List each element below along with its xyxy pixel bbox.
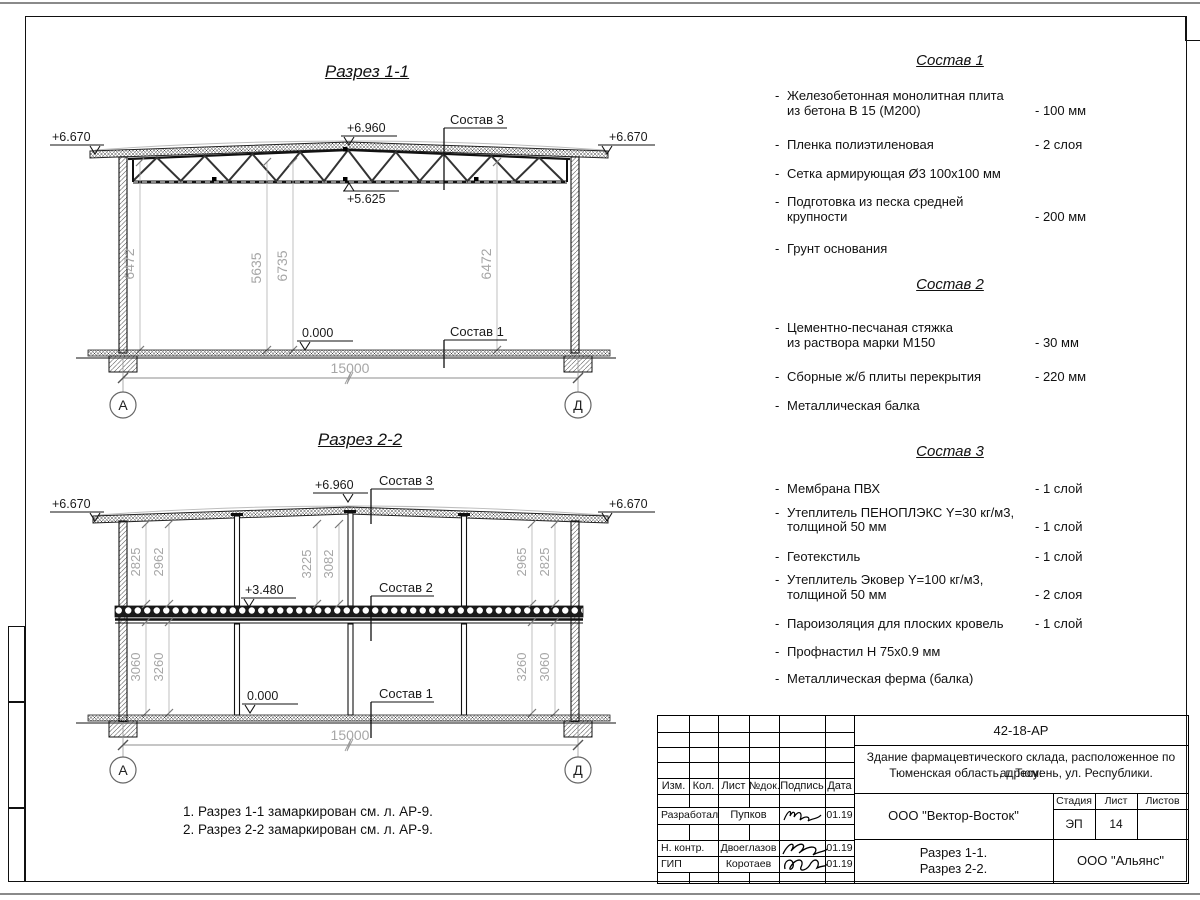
row-developer-role: Разработал [658,807,721,824]
row-ncontr-role: Н. контр. [658,840,721,856]
leader-roof-label: Состав 3 [450,112,504,127]
sheet-number: 14 [1095,809,1137,839]
company-name: ООО "Вектор-Восток" [854,793,1053,839]
list-item: -Подготовка из песка средней крупности -… [775,195,1125,224]
row-gip-role: ГИП [658,856,721,872]
note-line-2: 2. Разрез 2-2 замаркирован см. л. АР-9. [183,821,433,839]
sheets-label: Листов [1137,793,1188,809]
elev-left: +6.670 [52,130,91,144]
composition-2-title: Состав 2 [775,276,1125,293]
section1-drawing: 6472 5635 6735 6472 15000 А Д [50,112,655,418]
note-line-1: 1. Разрез 1-1 замаркирован см. л. АР-9. [183,803,433,821]
section2-drawing: 2825 2962 3225 3082 2965 2825 3060 3260 … [50,473,655,783]
leader2-slab-label: Состав 2 [379,580,433,595]
dim-height-right: 6472 [478,248,494,279]
stage-value: ЭП [1053,809,1095,839]
dim-l2: 3260 [151,653,166,682]
composition-1-title: Состав 1 [775,52,1125,69]
list-item: -Геотекстиль - 1 слой [775,550,1125,565]
axis-bubble-a2: А [118,762,128,778]
project-desc-line1: Здание фармацевтического склада, располо… [854,749,1188,765]
list-item: -Металлическая балка [775,399,1125,414]
dim-height-mid1: 5635 [248,252,264,283]
title-block: Изм. Кол. Лист №док. Подпись Дата Разраб… [657,715,1189,884]
list-item: -Профнастил Н 75х0.9 мм [775,645,1125,660]
row-ncontr-name: Двоеглазов [718,840,779,856]
dim-u1: 2825 [128,548,143,577]
col-header-list: Лист [718,778,749,794]
col-header-data: Дата [825,778,854,794]
list-item: -Железобетонная монолитная плита из бето… [775,89,1125,118]
dim-u4: 3082 [321,550,336,579]
col-header-podpis: Подпись [779,778,825,794]
list-item: -Мембрана ПВХ - 1 слой [775,482,1125,497]
sheets-total [1137,809,1188,839]
list-item: -Утеплитель ПЕНОПЛЭКС Y=30 кг/м3, толщин… [775,506,1125,535]
col-header-izm: Изм. [658,778,689,794]
elev2-floor: 0.000 [247,689,278,703]
leader-floor-label: Состав 1 [450,324,504,339]
list-item: -Грунт основания [775,242,1125,257]
composition-3-title: Состав 3 [775,443,1125,460]
project-desc-line2: Тюменская область, г. Тюмень, ул. Респуб… [854,765,1188,781]
dim-height-left: 6472 [121,248,137,279]
dim-u5: 2965 [514,548,529,577]
leader2-floor-label: Состав 1 [379,686,433,701]
elev2-left: +6.670 [52,497,91,511]
content-line-1: Разрез 1-1. [854,845,1053,861]
list-item: -Сборные ж/б плиты перекрытия - 220 мм [775,370,1125,385]
dim-height-mid2: 6735 [274,250,290,281]
row-developer-name: Пупков [718,807,779,824]
composition-1: Состав 1 -Железобетонная монолитная плит… [775,52,1125,257]
doc-number: 42-18-АР [854,716,1188,745]
axis-bubble-a: А [118,397,128,413]
composition-2: Состав 2 -Цементно-песчаная стяжка из ра… [775,276,1125,413]
list-item: -Пленка полиэтиленовая - 2 слоя [775,138,1125,153]
elev-ridge: +6.960 [347,121,386,135]
stage-label: Стадия [1053,793,1095,809]
list-item: -Металлическая ферма (балка) [775,672,1125,687]
col-header-ndok: №док. [749,778,779,794]
org-name: ООО "Альянс" [1053,839,1188,883]
drawing-sheet: Разрез 1-1 Разрез 2-2 [0,0,1200,900]
row-gip-name: Коротаев [718,856,779,872]
signature-scribble-3 [779,855,829,873]
sheet-label: Лист [1095,793,1137,809]
elev-truss: +5.625 [347,192,386,206]
col-header-kol: Кол. [689,778,718,794]
signature-scribble-1 [781,808,823,823]
dim-span: 15000 [331,360,370,376]
dim-u3: 3225 [299,550,314,579]
dim-span-2: 15000 [331,727,370,743]
list-item: -Цементно-песчаная стяжка из раствора ма… [775,321,1125,350]
dim-u2: 2962 [151,548,166,577]
elev-floor: 0.000 [302,326,333,340]
leader2-roof-label: Состав 3 [379,473,433,488]
elev2-ridge: +6.960 [315,478,354,492]
notes: 1. Разрез 1-1 замаркирован см. л. АР-9. … [183,803,433,839]
list-item: -Пароизоляция для плоских кровель - 1 сл… [775,617,1125,632]
axis-bubble-d: Д [573,397,583,413]
elev2-right: +6.670 [609,497,648,511]
row-gip-date: 01.19 [825,856,854,872]
list-item: -Утеплитель Эковер Y=100 кг/м3, толщиной… [775,573,1125,602]
dim-l4: 3060 [537,653,552,682]
dim-u6: 2825 [537,548,552,577]
row-ncontr-date: 01.19 [825,840,854,856]
row-developer-date: 01.19 [825,807,854,824]
content-line-2: Разрез 2-2. [854,861,1053,877]
dim-l3: 3260 [514,653,529,682]
axis-bubble-d2: Д [573,762,583,778]
composition-3: Состав 3 -Мембрана ПВХ - 1 слой -Утеплит… [775,443,1125,687]
elev2-slab: +3.480 [245,583,284,597]
list-item: -Сетка армирующая Ø3 100х100 мм [775,167,1125,182]
dim-l1: 3060 [128,653,143,682]
elev-right: +6.670 [609,130,648,144]
